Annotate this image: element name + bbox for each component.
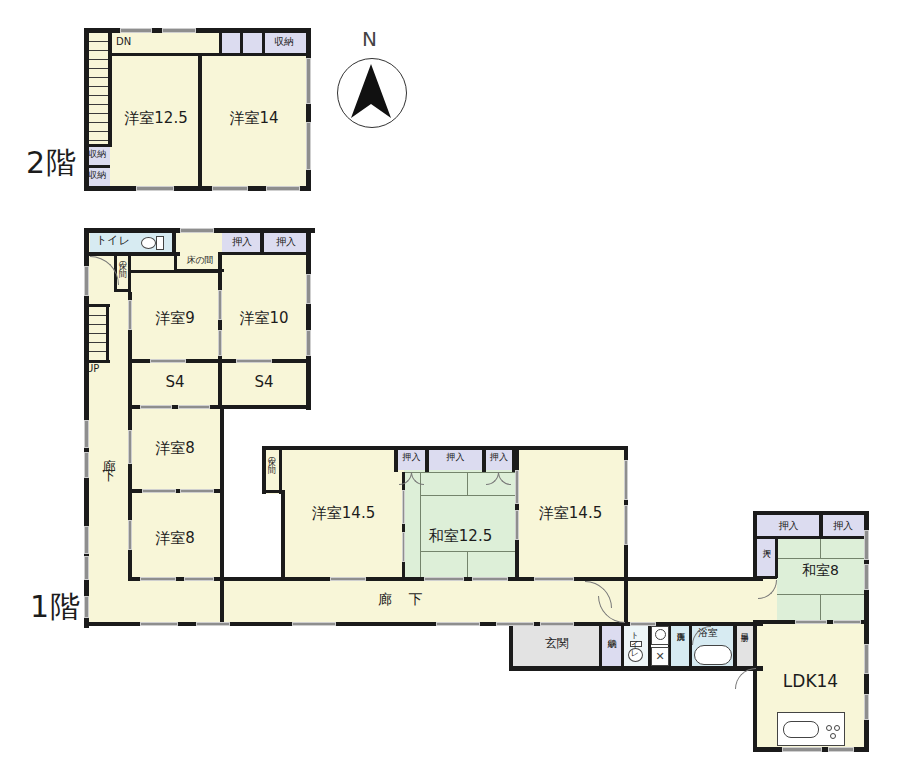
- window-mark: [84, 596, 89, 618]
- wall: [628, 577, 763, 581]
- door-mark: [180, 489, 214, 493]
- wall: [108, 28, 112, 147]
- sink-basin-icon: [655, 629, 666, 640]
- window-mark: [84, 452, 89, 478]
- floor2-label: 2階: [26, 146, 77, 179]
- closet-label-2f-left-1: 収納: [88, 150, 106, 160]
- window-mark: [864, 564, 869, 590]
- room-label-ldk: LDK14: [757, 672, 864, 691]
- wall: [621, 624, 624, 668]
- door-mark: [218, 330, 222, 356]
- door-mark: [833, 620, 861, 624]
- tatami-line: [420, 551, 517, 552]
- window-mark: [624, 505, 628, 545]
- room-label-yoshitsu9: 洋室9: [130, 310, 220, 327]
- room-label-toilet-top: トイレ: [96, 235, 130, 247]
- floor1-label: 1階: [30, 590, 81, 623]
- window-mark: [84, 556, 89, 580]
- wall: [128, 254, 131, 292]
- corridor-label-vertical: 廊下: [101, 448, 115, 472]
- stairs-1f: [89, 307, 106, 360]
- window-mark: [864, 644, 869, 674]
- closet-genkan: [601, 624, 623, 668]
- wall: [260, 230, 264, 253]
- wall: [220, 405, 224, 626]
- closet-label-2f-top: 収納: [262, 36, 306, 47]
- tatami-line: [467, 472, 468, 496]
- stairs-2f: [89, 33, 108, 144]
- door-mark: [540, 622, 574, 626]
- room-label-yoshitsu8-lower: 洋室8: [130, 530, 220, 547]
- room-label-yoshitsu145-right: 洋室14.5: [517, 505, 624, 522]
- door-mark: [472, 577, 508, 581]
- room-senmenjo: [670, 624, 691, 668]
- room-label-washitsu125: 和室12.5: [404, 528, 517, 545]
- toilet-tank-icon: [156, 236, 164, 250]
- wall: [757, 576, 777, 579]
- window-mark: [266, 186, 300, 191]
- room-label-yoshitsu125: 洋室12.5: [112, 110, 200, 127]
- wall: [222, 252, 310, 255]
- wall: [262, 446, 628, 450]
- window-mark: [306, 274, 311, 304]
- compass-north-label: N: [362, 28, 377, 50]
- room-label-toilet-small: トイレ: [629, 626, 638, 653]
- window-mark: [140, 622, 178, 626]
- compass-north-arrow-icon: [337, 58, 405, 126]
- oshiire-label: 押入: [429, 453, 482, 463]
- door-mark: [150, 359, 186, 363]
- wall: [84, 252, 180, 256]
- wall: [281, 490, 285, 581]
- corridor-label-horizontal: 廊 下: [378, 592, 428, 607]
- door-mark: [236, 359, 272, 363]
- window-mark: [864, 530, 869, 560]
- window-mark: [162, 28, 196, 33]
- door-mark: [424, 577, 464, 581]
- wall: [172, 228, 176, 255]
- stairs-dn-label: DN: [116, 36, 131, 47]
- door-mark: [515, 470, 519, 504]
- tokonoma-label-small: 床の間: [117, 256, 126, 265]
- door-mark: [140, 405, 172, 409]
- door-mark: [330, 577, 366, 581]
- wall: [306, 228, 311, 410]
- door-mark: [184, 577, 214, 581]
- oshiire-label: 押入: [822, 520, 864, 531]
- window-mark: [306, 330, 311, 356]
- tatami-line: [820, 538, 821, 559]
- window-mark: [782, 747, 822, 752]
- door-mark: [178, 405, 210, 409]
- wall: [222, 577, 285, 581]
- window-mark: [624, 460, 628, 500]
- stove-burner-icon: [826, 725, 832, 731]
- bathtub-icon: [694, 645, 732, 665]
- oshiire-label: 押入: [757, 520, 820, 531]
- stove-burner-icon: [830, 733, 836, 739]
- room-label-s4-right: S4: [222, 374, 306, 391]
- window-mark: [84, 420, 89, 448]
- wall: [106, 304, 109, 362]
- window-mark: [84, 266, 89, 296]
- window-mark: [828, 747, 854, 752]
- toilet-bowl-icon: [141, 237, 156, 249]
- room-label-yoshitsu14: 洋室14: [204, 110, 304, 127]
- window-mark: [306, 122, 311, 170]
- washing-machine-icon: ✕: [651, 647, 669, 666]
- window-mark: [306, 58, 311, 104]
- tatami-line: [420, 472, 421, 577]
- stairs-up-label: UP: [86, 363, 99, 374]
- kitchen-sink-icon: [783, 721, 819, 738]
- room-label-washitsu8: 和室8: [777, 563, 864, 578]
- oshiire-label: 押入: [266, 236, 306, 247]
- door-mark: [795, 620, 827, 624]
- window-mark: [436, 622, 480, 626]
- window-mark: [84, 526, 89, 554]
- tokonoma-label-top: 床の間: [178, 256, 222, 266]
- tatami-line: [467, 551, 468, 579]
- wall: [84, 165, 110, 168]
- wall: [262, 490, 282, 493]
- window-mark: [212, 186, 248, 191]
- room-label-genkan: 玄関: [513, 637, 601, 650]
- wall: [279, 448, 282, 494]
- door-mark: [142, 489, 176, 493]
- wall: [240, 32, 243, 53]
- window-mark: [292, 622, 336, 626]
- window-mark: [196, 622, 230, 626]
- room-label-yoshitsu145-left: 洋室14.5: [283, 505, 404, 522]
- wall: [84, 144, 110, 147]
- wall: [753, 511, 868, 515]
- room-label-s4-left: S4: [130, 374, 220, 391]
- wall: [84, 28, 311, 33]
- oshiire-label: 押入: [484, 453, 514, 463]
- room-label-yoshitsu10: 洋室10: [222, 310, 306, 327]
- closet-label-2f-left-2: 収納: [88, 171, 106, 181]
- window-mark: [496, 622, 534, 626]
- window-mark: [136, 186, 174, 191]
- wall: [733, 622, 737, 671]
- wall: [689, 624, 692, 668]
- window-mark: [864, 694, 869, 720]
- room-label-bathroom: 浴室: [698, 627, 718, 638]
- room-label-yoshitsu8-upper: 洋室8: [130, 440, 220, 457]
- window-mark: [180, 228, 214, 233]
- floor-plan: N 2階 DN 洋室12.5 洋室14 収納 収納 収納: [0, 0, 900, 779]
- window-mark: [120, 28, 152, 33]
- oshiire-right-side: [757, 538, 777, 578]
- oshiire-label: 押入: [396, 453, 427, 463]
- wall: [219, 28, 222, 54]
- tokonoma-label-mid: 床の間: [266, 452, 275, 461]
- oshiire-label: 押入: [226, 236, 258, 247]
- door-mark: [140, 577, 176, 581]
- wall: [128, 270, 221, 273]
- wall: [757, 536, 864, 539]
- wall: [108, 53, 307, 56]
- door-arc: [735, 668, 756, 689]
- door-mark: [534, 577, 574, 581]
- wall: [509, 666, 763, 671]
- tatami-line: [420, 495, 517, 496]
- stove-burner-icon: [834, 725, 840, 731]
